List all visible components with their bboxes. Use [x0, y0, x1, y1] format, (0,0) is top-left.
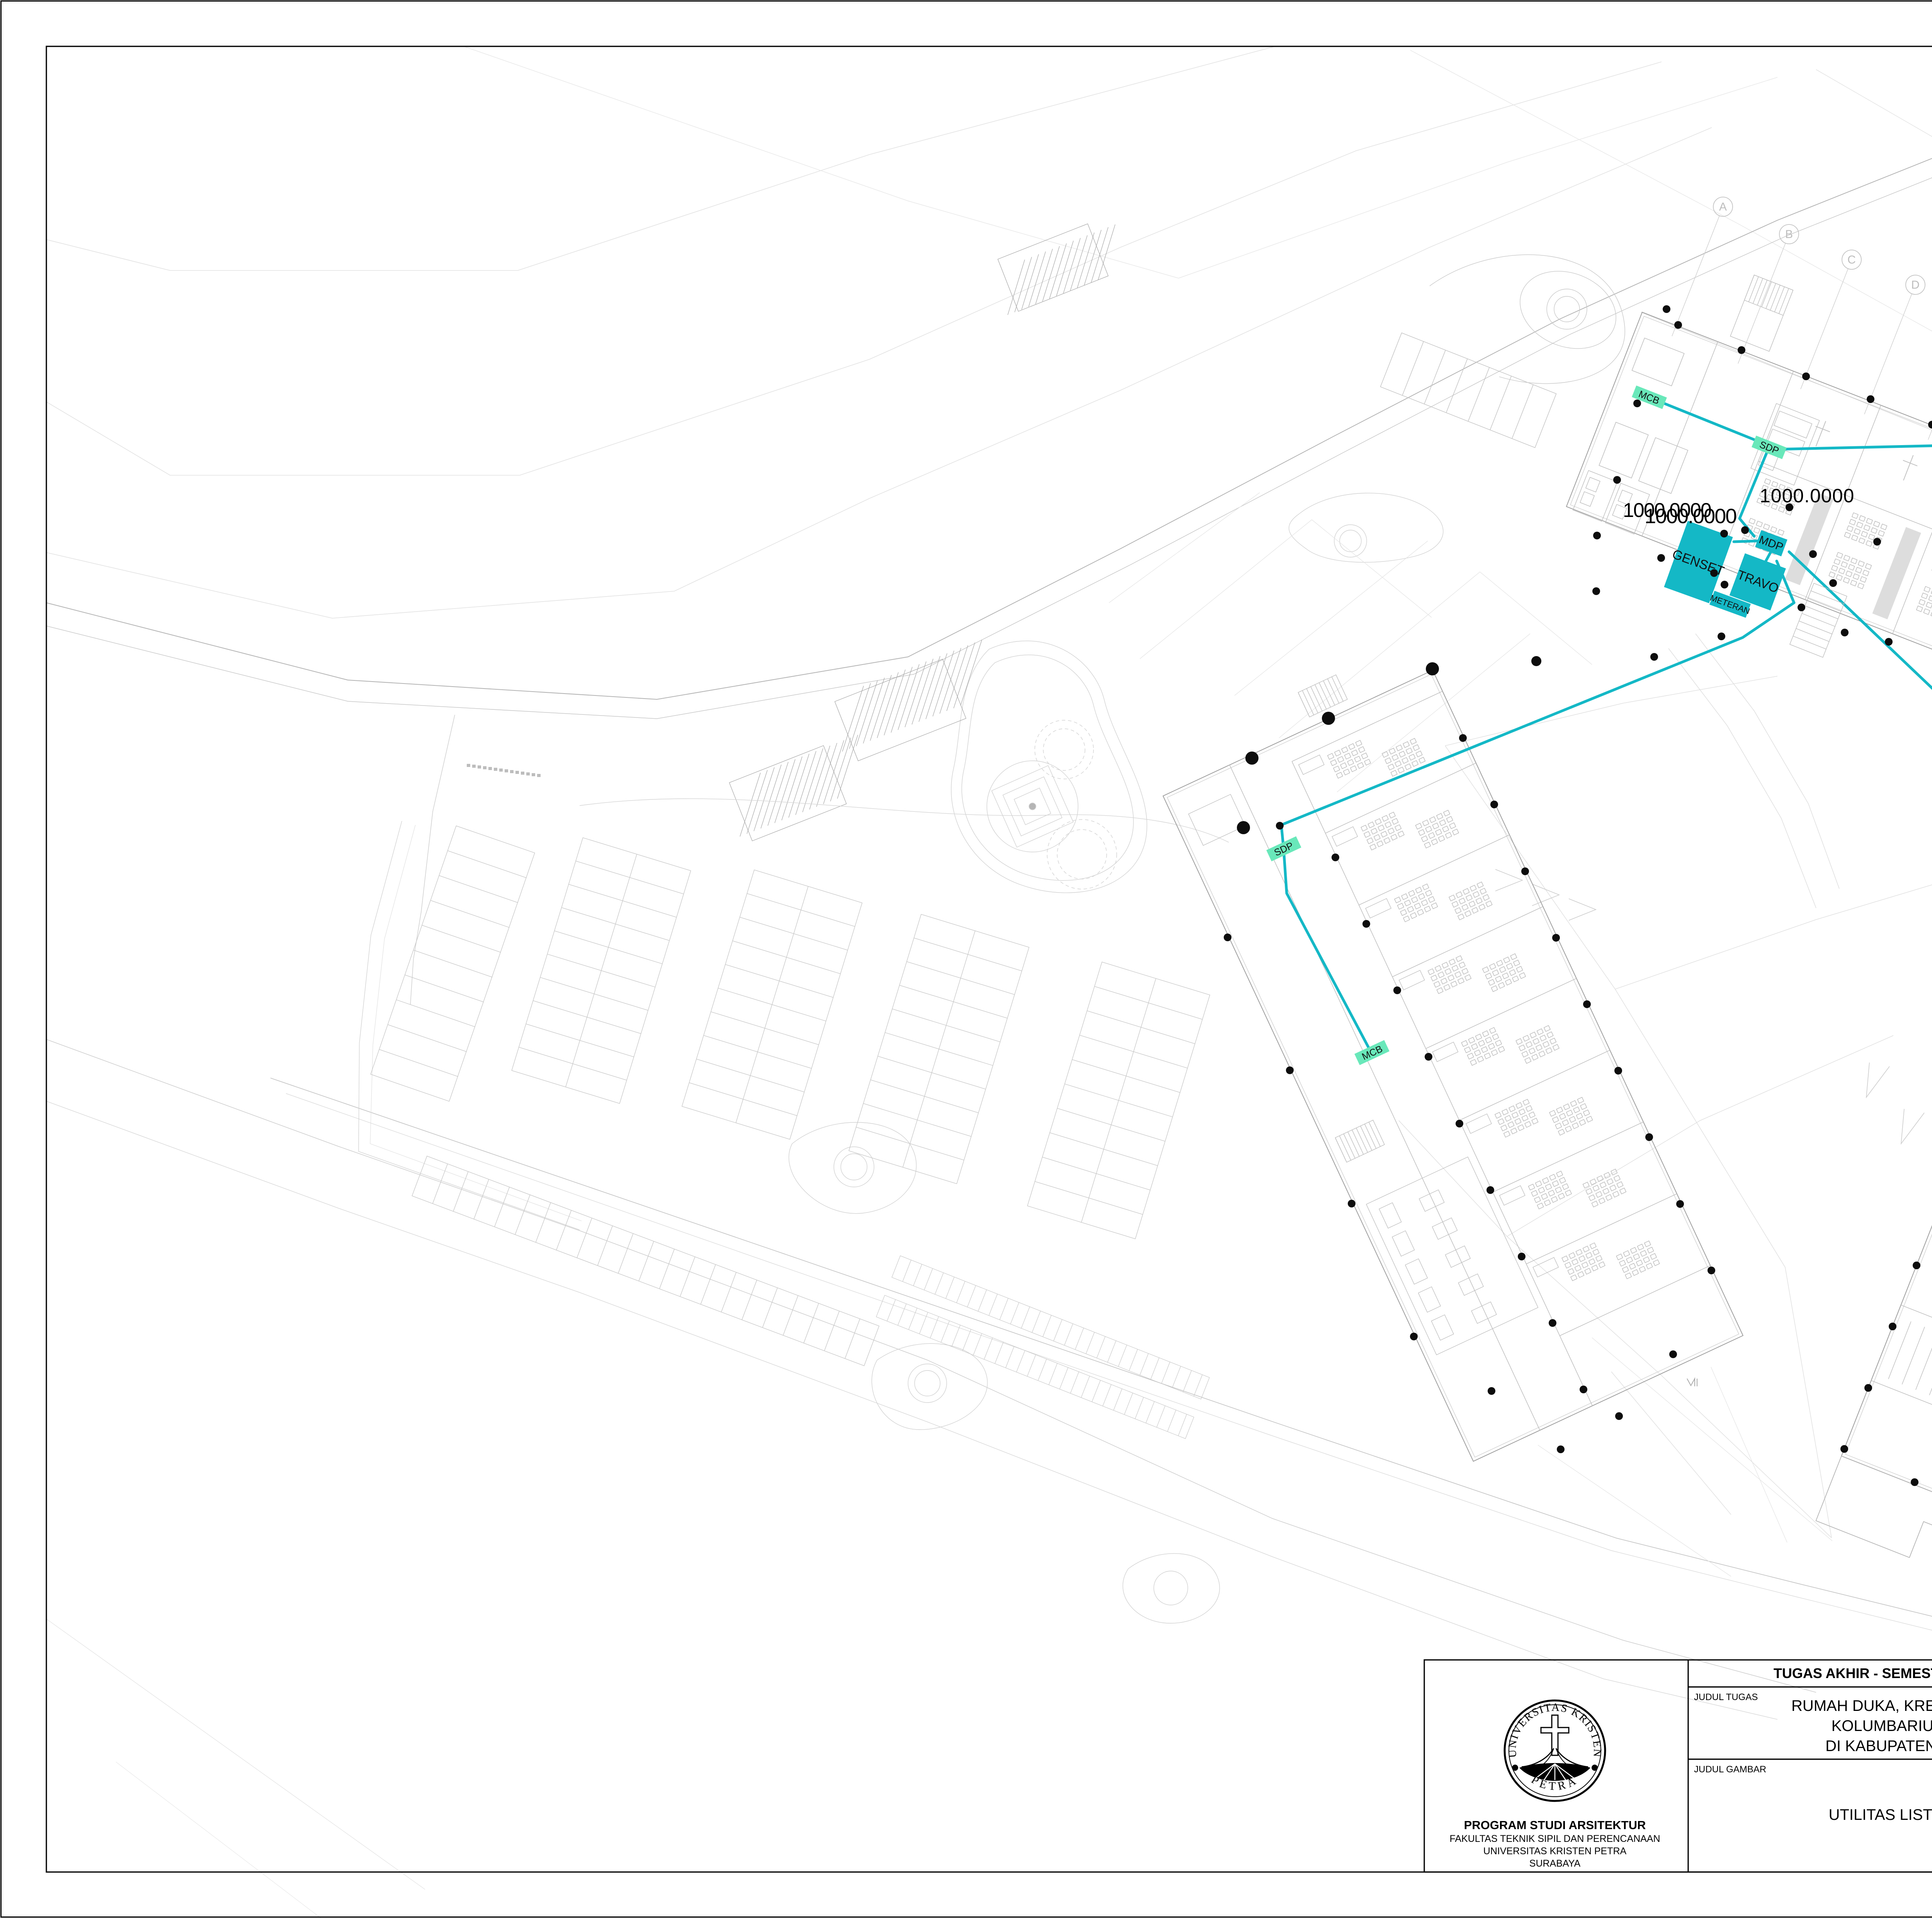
svg-text:JUDUL GAMBAR: JUDUL GAMBAR	[1694, 1764, 1766, 1775]
svg-text:UNIVERSITAS KRISTEN PETRA: UNIVERSITAS KRISTEN PETRA	[1483, 1846, 1627, 1857]
svg-text:D: D	[1911, 279, 1920, 291]
svg-text:1000.0000: 1000.0000	[1645, 505, 1736, 528]
svg-text:C: C	[1847, 253, 1856, 266]
svg-text:SURABAYA: SURABAYA	[1529, 1858, 1581, 1869]
svg-text:B: B	[1785, 228, 1793, 241]
svg-text:A: A	[1719, 201, 1727, 213]
svg-text:FAKULTAS TEKNIK SIPIL DAN PERE: FAKULTAS TEKNIK SIPIL DAN PERENCANAAN	[1449, 1833, 1660, 1844]
svg-text:PROGRAM STUDI ARSITEKTUR: PROGRAM STUDI ARSITEKTUR	[1464, 1818, 1646, 1832]
svg-text:RUMAH DUKA, KREMATORIUM, DAN: RUMAH DUKA, KREMATORIUM, DAN	[1791, 1697, 1932, 1714]
svg-text:1000.0000: 1000.0000	[1760, 485, 1854, 507]
svg-text:UTILITAS LISTRIK: UTILITAS LISTRIK	[1829, 1806, 1932, 1823]
svg-text:JUDUL TUGAS: JUDUL TUGAS	[1694, 1692, 1758, 1702]
svg-text:DI KABUPATEN PASURUAN: DI KABUPATEN PASURUAN	[1825, 1738, 1932, 1755]
svg-text:TUGAS AKHIR - SEMESTER GENAP 2: TUGAS AKHIR - SEMESTER GENAP 2023/2024	[1774, 1665, 1932, 1681]
svg-text:KOLUMBARIUM NASRANI: KOLUMBARIUM NASRANI	[1832, 1717, 1932, 1734]
